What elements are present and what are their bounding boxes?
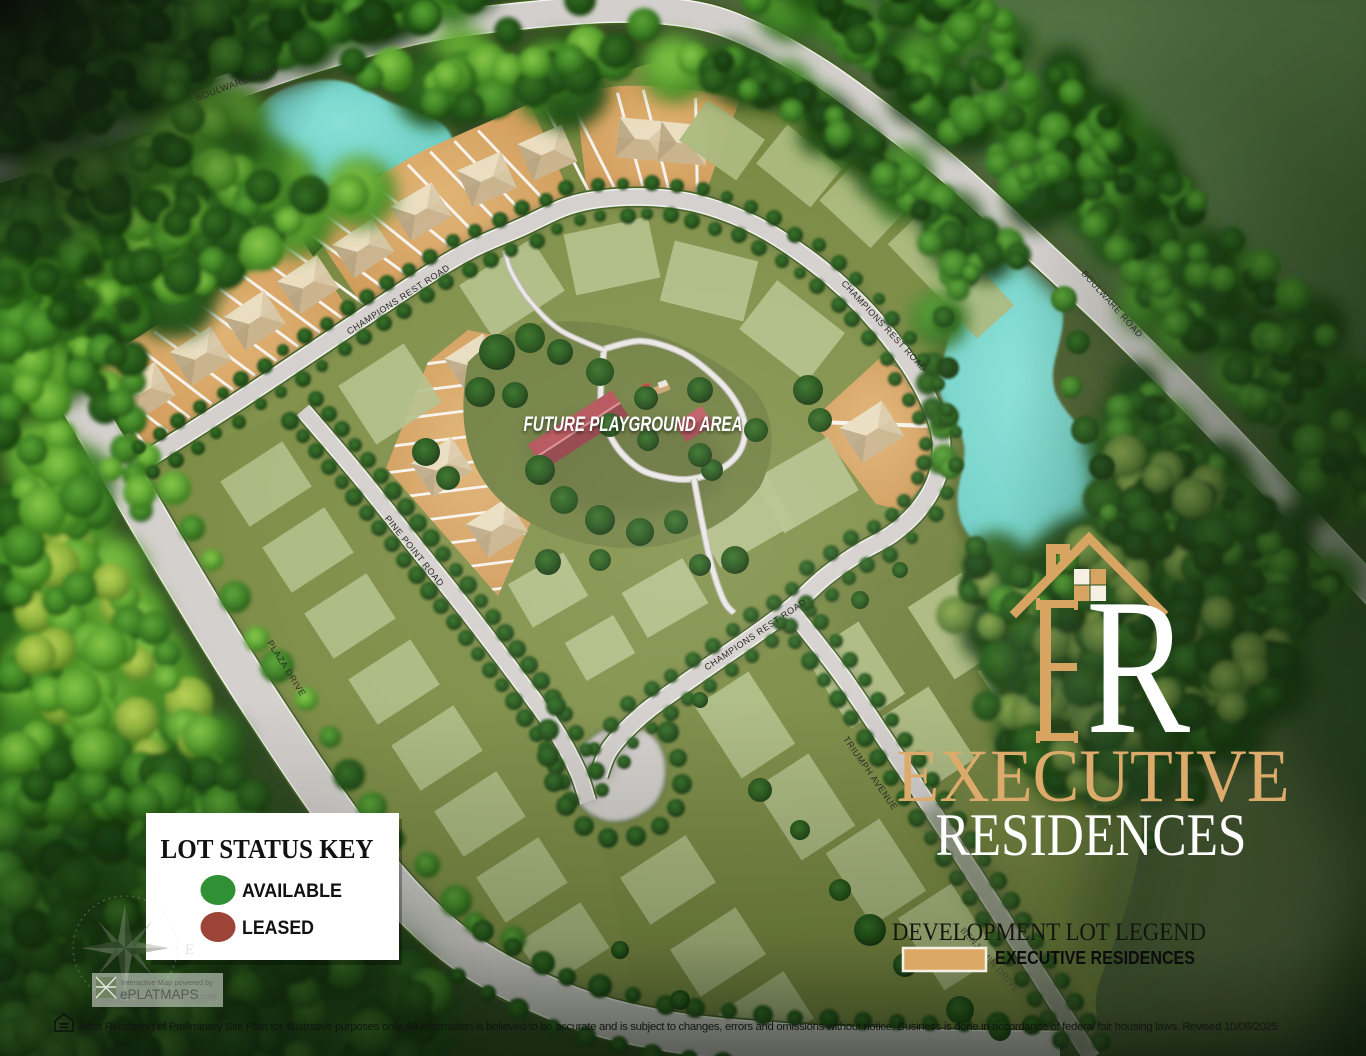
svg-text:AVAILABLE: AVAILABLE xyxy=(242,881,342,902)
svg-text:RESIDENCES: RESIDENCES xyxy=(936,802,1247,868)
svg-text:E: E xyxy=(185,942,194,958)
svg-text:EXECUTIVE RESIDENCES: EXECUTIVE RESIDENCES xyxy=(995,948,1195,968)
svg-text:Artist Rendering of Preliminar: Artist Rendering of Preliminary Site Pla… xyxy=(78,1021,1278,1033)
svg-text:LEASED: LEASED xyxy=(242,918,314,939)
svg-text:LOT STATUS KEY: LOT STATUS KEY xyxy=(161,834,374,864)
svg-text:Interactive Map powered by: Interactive Map powered by xyxy=(121,978,213,987)
svg-text:FUTURE PLAYGROUND AREA: FUTURE PLAYGROUND AREA xyxy=(524,412,743,436)
svg-text:DEVELOPMENT LOT LEGEND: DEVELOPMENT LOT LEGEND xyxy=(892,919,1206,946)
